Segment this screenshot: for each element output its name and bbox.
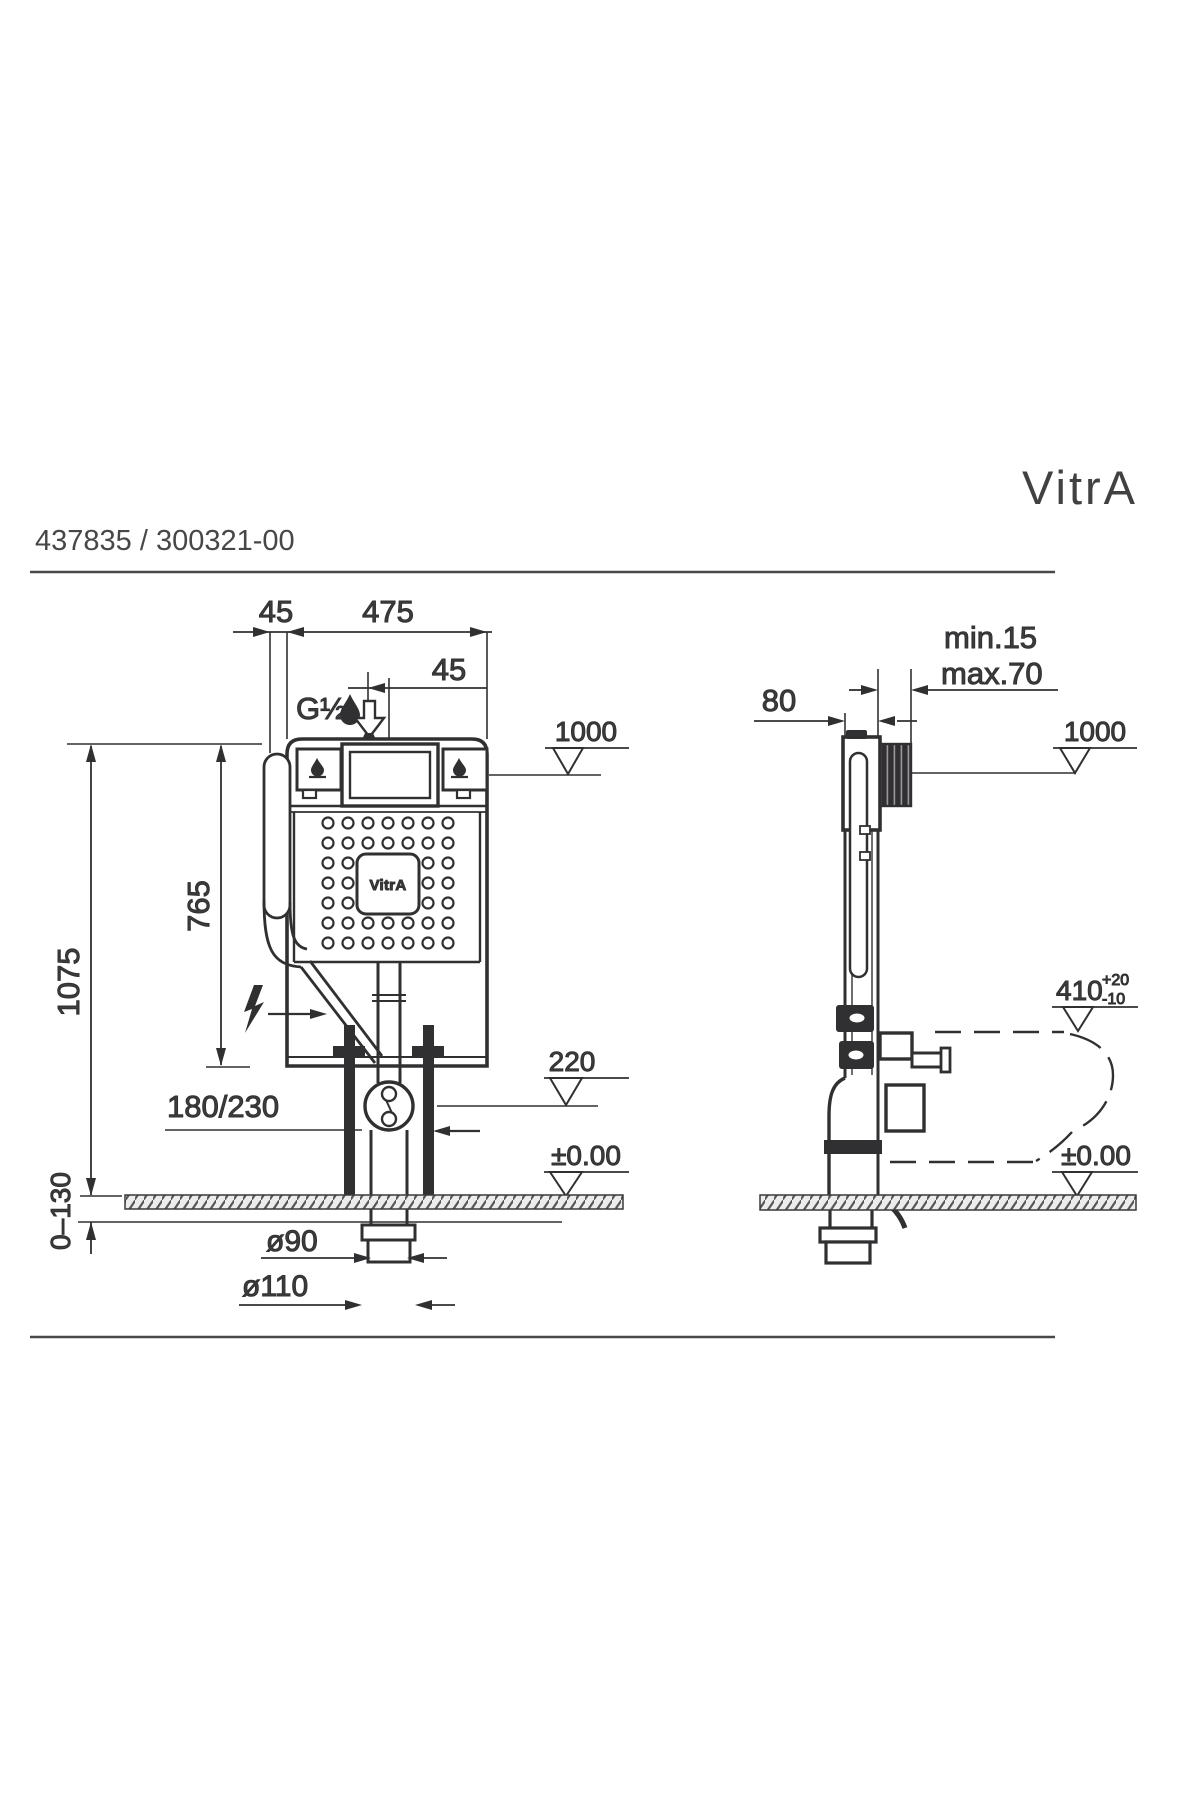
water-inlet: G½	[296, 691, 384, 742]
bowl-height-label: 410	[1056, 975, 1103, 1006]
dim-flush-pipe-offset: 180/230	[165, 1089, 362, 1130]
dim-height-total: 1075	[51, 744, 262, 1196]
level-marker-410: 410 +20 -10	[1052, 972, 1138, 1031]
fixing-symbol-right	[433, 1126, 480, 1136]
wall-finish-block	[880, 744, 911, 806]
level-marker-floor-side: ±0.00	[1052, 1140, 1138, 1196]
dim-inlet-offset-label: 45	[432, 652, 466, 687]
bowl-height-tol-minus: -10	[1102, 991, 1125, 1008]
cistern-logo-label: VitrA	[369, 877, 406, 894]
dim-drain-diameter: ø110	[239, 1270, 455, 1310]
outlet-spigot	[880, 1033, 912, 1059]
bowl-height-tol-plus: +20	[1102, 972, 1129, 989]
level-top-label-side: 1000	[1064, 716, 1126, 747]
flush-pipe-offset-label: 180/230	[167, 1089, 279, 1124]
height-total-label: 1075	[51, 948, 86, 1017]
outlet-diameter-label: ø90	[266, 1225, 318, 1258]
drain-diameter-label: ø110	[242, 1270, 308, 1303]
anchor-bolt-icon	[244, 985, 264, 1033]
dim-wall-thickness: min.15 max.70	[845, 620, 1058, 743]
height-cistern-label: 765	[181, 880, 216, 932]
product-code: 437835 / 300321-00	[35, 525, 295, 557]
floor-adjust-label: 0–130	[45, 1172, 76, 1250]
front-view: 45 475 45 G½	[45, 594, 629, 1310]
level-marker-1000-front: 1000	[489, 716, 629, 775]
drain-collar-side	[820, 1228, 876, 1242]
brand-logo: VitrA	[1022, 461, 1138, 514]
level-top-label: 1000	[555, 716, 617, 747]
level-floor-label-side: ±0.00	[1061, 1140, 1131, 1171]
wall-max-label: max.70	[941, 656, 1043, 691]
drain-collar	[362, 1225, 415, 1240]
level-floor-label-front: ±0.00	[551, 1140, 621, 1171]
floor-hatch-front	[125, 1195, 623, 1209]
dim-outlet-diameter: ø90	[261, 1225, 447, 1263]
floor-hatch-side	[760, 1195, 1136, 1210]
wall-min-label: min.15	[944, 620, 1037, 655]
side-view: 80 min.15 max.70	[754, 620, 1138, 1263]
frame-side	[820, 753, 950, 1263]
dim-height-cistern: 765	[181, 744, 250, 1067]
inlet-arrow-icon	[355, 701, 384, 737]
dim-offset-top-label: 45	[259, 594, 293, 629]
level-marker-floor-front: ±0.00	[544, 1140, 629, 1196]
dim-depth: 80	[754, 683, 917, 726]
depth-label: 80	[762, 683, 796, 718]
drawing-sheet: VitrA 437835 / 300321-00 45 475 45 G½	[0, 0, 1200, 1800]
inlet-thread-label: G½	[296, 691, 346, 726]
outlet-socket	[886, 1085, 924, 1131]
cistern-logo-plate: VitrA	[357, 854, 419, 914]
level-marker-1000-side: 1000	[912, 716, 1137, 773]
dim-width-label: 475	[362, 594, 414, 629]
level-outlet-label: 220	[549, 1046, 596, 1077]
